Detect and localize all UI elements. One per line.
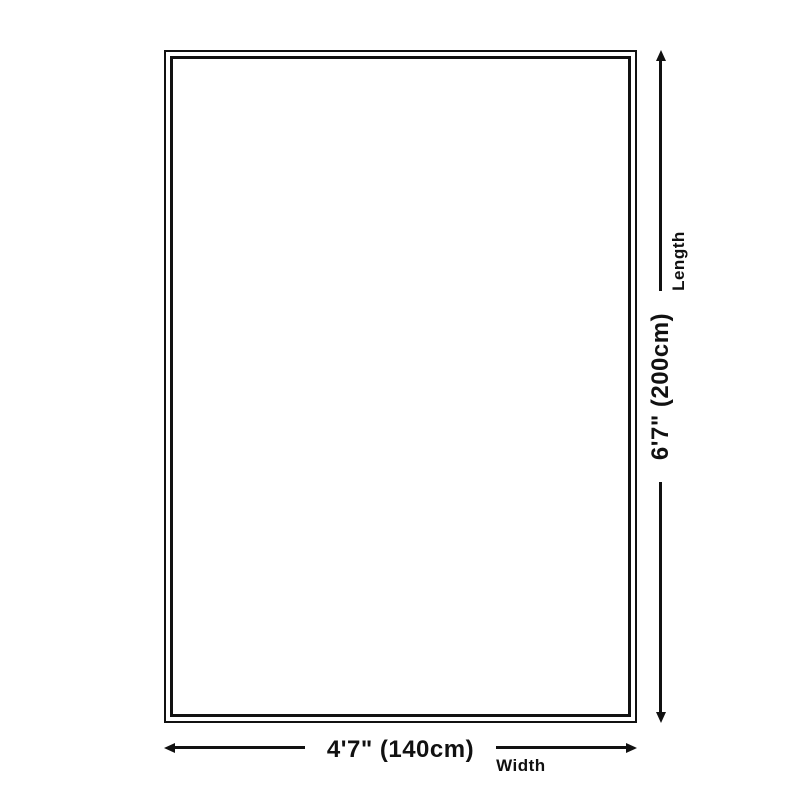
length-dimension: 6'7" (200cm) Length — [646, 50, 675, 723]
length-label: Length — [670, 231, 687, 291]
width-arrow-left-segment — [164, 733, 305, 762]
rug-inner-border — [170, 56, 631, 717]
rug-outline — [164, 50, 637, 723]
width-arrow-right-segment: Width — [496, 733, 637, 762]
width-arrow-right-line — [496, 746, 626, 749]
width-dimension: 4'7" (140cm) Width — [164, 733, 637, 762]
width-arrow-left-line — [175, 746, 305, 749]
length-arrow-bottom-line — [659, 482, 662, 712]
width-label: Width — [496, 757, 546, 774]
arrow-up-icon — [656, 50, 666, 61]
length-arrow-top-line — [659, 61, 662, 291]
length-arrow-top-segment: Length — [646, 50, 675, 291]
diagram-canvas: 4'7" (140cm) Width 6'7" (200cm) Length — [0, 0, 800, 800]
arrow-right-icon — [626, 743, 637, 753]
length-arrow-bottom-segment — [646, 482, 675, 723]
arrow-left-icon — [164, 743, 175, 753]
length-value: 6'7" (200cm) — [649, 313, 673, 460]
arrow-down-icon — [656, 712, 666, 723]
width-value: 4'7" (140cm) — [327, 738, 474, 762]
